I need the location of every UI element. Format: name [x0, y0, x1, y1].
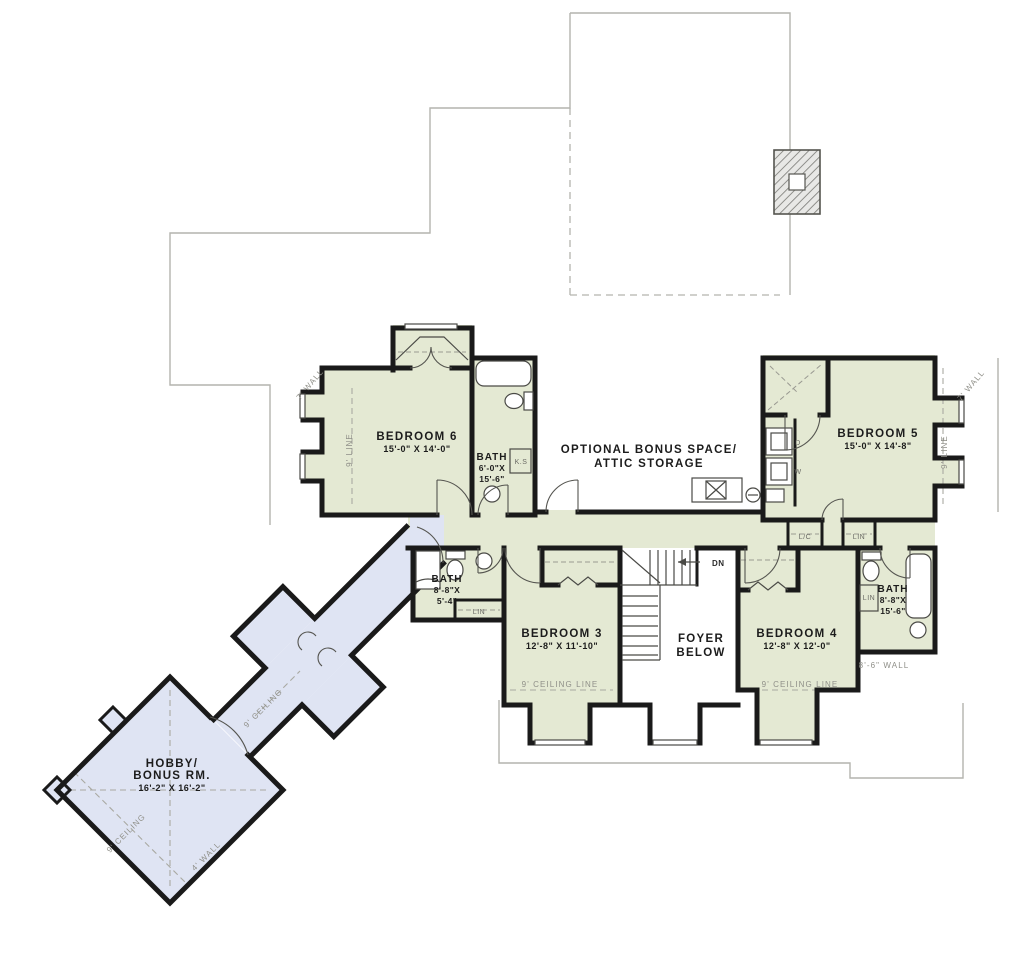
- toilet-tank: [862, 552, 881, 560]
- linen-label-bath-right: LIN: [863, 595, 875, 602]
- linen-coat-label: L/C: [799, 534, 811, 541]
- bedroom4-label: BEDROOM 4: [756, 628, 837, 640]
- line9-left-label: 9' LINE: [345, 433, 354, 467]
- bath-left-dim-l: 5'-4": [437, 596, 457, 606]
- window: [959, 460, 964, 484]
- washer-label: W: [794, 469, 801, 476]
- foyer-label-2: BELOW: [676, 647, 725, 659]
- bedroom5-dims: 15'-0" X 14'-8": [844, 441, 911, 451]
- bedroom3-dims: 12'-8" X 11'-10": [526, 641, 598, 651]
- dryer-box: [766, 428, 792, 455]
- window: [653, 740, 697, 745]
- ceiling-line-right-label: 9' CEILING LINE: [762, 680, 839, 689]
- bedroom6-closet-floor: [393, 325, 472, 370]
- bath-left-label: BATH: [431, 574, 462, 585]
- bedroom4-dims: 12'-8" X 12'-0": [763, 641, 830, 651]
- hall-floor-fills: [44, 515, 444, 903]
- bedroom6-label: BEDROOM 6: [376, 431, 457, 443]
- toilet-tank: [524, 392, 533, 410]
- bath-right-dim-w: 8'-8"X: [880, 595, 906, 605]
- bonus-space-label-2: ATTIC STORAGE: [594, 458, 704, 470]
- bathtub: [476, 361, 531, 386]
- bath6-label: BATH: [476, 452, 507, 463]
- knee-space-label: K.S: [515, 459, 528, 466]
- hobby-dims: 16'-2" X 16'-2": [138, 783, 205, 793]
- linen-label-bath-left: LIN: [473, 609, 485, 616]
- floor-plan-drawing: BEDROOM 6 15'-0" X 14'-0" BATH 6'-0"X 15…: [0, 0, 1030, 975]
- linen-label-hall: LIN: [853, 534, 865, 541]
- window: [300, 454, 305, 479]
- bonus-space-label-1: OPTIONAL BONUS SPACE/: [561, 444, 737, 456]
- window: [959, 400, 964, 423]
- wall86-label: 8'-6" WALL: [859, 661, 910, 670]
- window: [405, 324, 457, 329]
- floor-plan-page: BEDROOM 6 15'-0" X 14'-0" BATH 6'-0"X 15…: [0, 0, 1030, 975]
- bath-left-dim-w: 8'-8"X: [434, 585, 460, 595]
- bath-right-label: BATH: [877, 584, 908, 595]
- chimney: [774, 150, 820, 214]
- toilet-bowl: [863, 561, 879, 581]
- ceiling-line-left-label: 9' CEILING LINE: [522, 680, 599, 689]
- washer-box: [766, 458, 792, 485]
- laundry-cabinet: [766, 489, 784, 502]
- wall7-right-label: 7' WALL: [956, 368, 987, 402]
- bedroom3-label: BEDROOM 3: [521, 628, 602, 640]
- bedroom6-dims: 15'-0" X 14'-0": [383, 444, 450, 454]
- dryer-label: D: [795, 440, 801, 447]
- foyer-label-1: FOYER: [678, 633, 724, 645]
- toilet-tank: [446, 551, 465, 559]
- sink: [910, 622, 926, 638]
- window: [760, 740, 812, 745]
- line9-right-label: 9' LINE: [940, 435, 949, 469]
- window: [535, 740, 585, 745]
- bath6-dim-l: 15'-6": [479, 474, 504, 484]
- stairs-dn-label: DN: [712, 559, 725, 568]
- toilet-bowl: [505, 394, 523, 409]
- attic-access-panel: [692, 478, 742, 502]
- bath-right-dim-l: 15'-6": [880, 606, 905, 616]
- hobby-label-2: BONUS RM.: [133, 770, 211, 782]
- bath6-dim-w: 6'-0"X: [479, 463, 505, 473]
- hobby-label-1: HOBBY/: [146, 758, 199, 770]
- bedroom5-label: BEDROOM 5: [837, 428, 918, 440]
